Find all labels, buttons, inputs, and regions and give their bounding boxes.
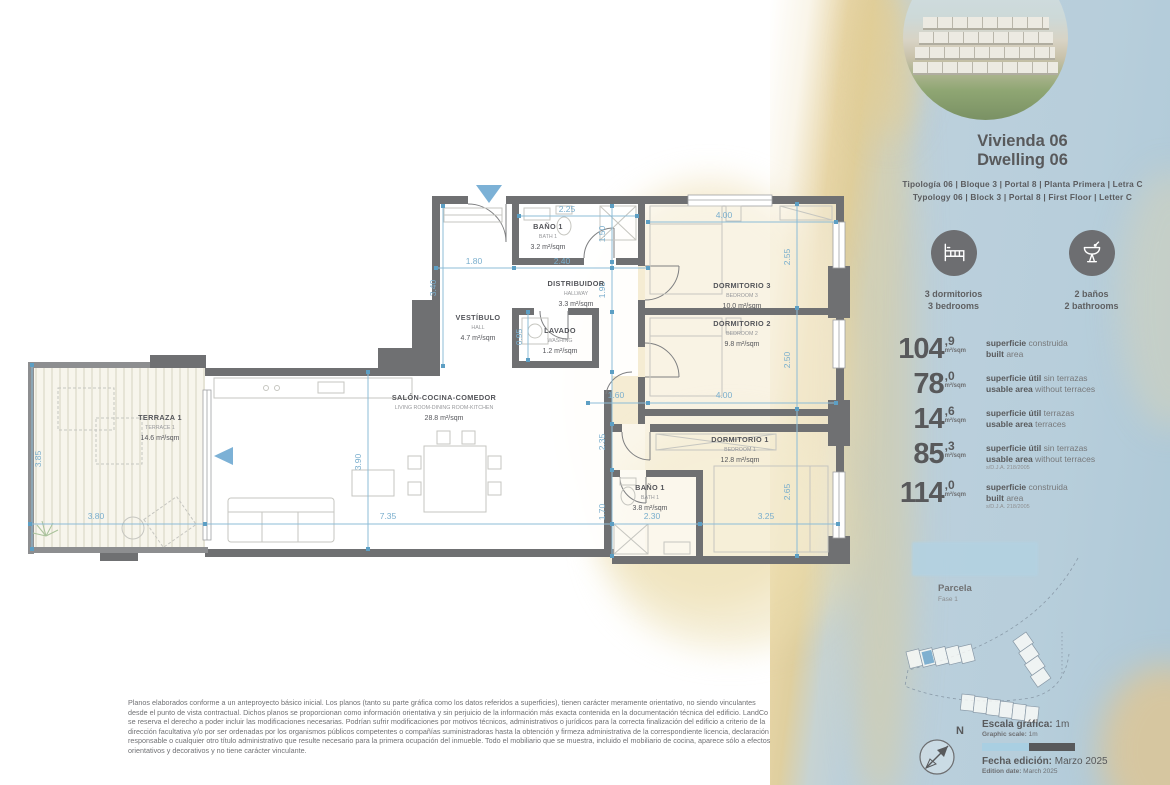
dim-label: 2.25 — [559, 204, 576, 214]
room-label: 3.3 m²/sqm — [558, 301, 593, 308]
entry-arrow-icon — [476, 185, 502, 203]
stat-decimal: ,6 — [945, 406, 955, 417]
dim-label: 3.90 — [353, 453, 363, 470]
stat-note: s/D.J.A. 218/2005 — [986, 504, 1068, 510]
stat-row: 114 ,0 m²/sqm superficie construida buil… — [880, 480, 1168, 510]
room-label: VESTÍBULO — [456, 313, 501, 322]
feature-icons: 3 dormitorios 3 bedrooms 2 baños 2 bathr… — [880, 230, 1165, 312]
room-label: SALÓN-COCINA-COMEDOR — [392, 393, 497, 402]
feature-bathrooms: 2 baños 2 bathrooms — [1042, 230, 1142, 312]
room-label: BEDROOM 1 — [724, 447, 756, 453]
dim-label: 1.60 — [608, 390, 625, 400]
compass-north-icon: N — [920, 725, 964, 774]
stat-decimal: ,3 — [945, 441, 955, 452]
stat-decimal: ,9 — [945, 336, 955, 347]
room-label: TERRACE 1 — [145, 425, 175, 431]
stat-value: 78 — [913, 371, 943, 397]
room-label: BAÑO 1 — [635, 483, 665, 492]
dim-label: 2.65 — [782, 483, 792, 500]
room-label: 12.8 m²/sqm — [721, 457, 760, 464]
title-en: Dwelling 06 — [880, 151, 1165, 170]
title-es: Vivienda 06 — [880, 132, 1165, 151]
bathrooms-label-es: 2 baños — [1064, 288, 1118, 300]
stat-value: 85 — [913, 441, 943, 467]
dim-label: 3.25 — [758, 511, 775, 521]
room-label: DORMITORIO 1 — [711, 435, 769, 444]
scale-and-date: Escala gráfica: 1m Graphic scale: 1m Fec… — [982, 719, 1108, 776]
room-label: TERRAZA 1 — [138, 413, 182, 422]
room-label: LIVING ROOM-DINING ROOM-KITCHEN — [395, 405, 494, 411]
room-label: 28.8 m²/sqm — [425, 415, 464, 422]
dim-label: 4.00 — [716, 210, 733, 220]
room-label: 10.0 m²/sqm — [723, 303, 762, 310]
bathrooms-label-en: 2 bathrooms — [1064, 300, 1118, 312]
room-label: WASHING — [547, 338, 572, 344]
room-label: HALLWAY — [564, 291, 589, 297]
stat-decimal: ,0 — [945, 371, 955, 382]
bedrooms-label-en: 3 bedrooms — [925, 300, 983, 312]
room-label: BEDROOM 3 — [726, 293, 758, 299]
room-label: HALL — [471, 325, 484, 331]
dim-label: 1.80 — [466, 256, 483, 266]
bed-icon — [931, 230, 977, 276]
dim-label: 3.80 — [88, 511, 105, 521]
room-label: 4.7 m²/sqm — [460, 335, 495, 342]
dim-label: 4.00 — [716, 390, 733, 400]
stat-decimal: ,0 — [945, 480, 955, 491]
parcel-phase: Fase 1 — [938, 594, 972, 605]
scale-label-es: Escala gráfica: — [982, 719, 1053, 730]
parcel-label: Parcela Fase 1 — [938, 583, 972, 605]
stat-row: 14 ,6 m²/sqm superficie útil terrazas us… — [880, 406, 1168, 432]
room-label: BAÑO 1 — [533, 222, 563, 231]
graphic-scale-bar — [982, 743, 1108, 751]
room-label: BATH 1 — [641, 495, 659, 501]
dim-label: 1.70 — [597, 503, 607, 520]
north-label: N — [956, 725, 964, 737]
stat-unit: m²/sqm — [945, 383, 966, 389]
parcel-title: Parcela — [938, 583, 972, 594]
stat-value: 14 — [913, 406, 943, 432]
room-label: LAVADO — [544, 326, 576, 335]
typology-en: Typology 06 | Block 3 | Portal 8 | First… — [855, 191, 1170, 204]
room-label: BATH 1 — [539, 234, 557, 240]
parcel-map — [905, 558, 1078, 723]
stat-unit: m²/sqm — [945, 453, 966, 459]
scale-label-en: Graphic scale: — [982, 731, 1027, 738]
dim-label: 2.55 — [782, 248, 792, 265]
dim-label: 7.35 — [380, 511, 397, 521]
dim-label: 3.85 — [33, 450, 43, 467]
dim-label: 1.50 — [597, 225, 607, 242]
stat-row: 85 ,3 m²/sqm superficie útil sin terraza… — [880, 441, 1168, 471]
date-label-en: Edition date: — [982, 768, 1021, 775]
area-statistics: 104 ,9 m²/sqm superficie construida buil… — [880, 336, 1168, 519]
room-label: 14.6 m²/sqm — [141, 435, 180, 442]
dim-label: 2.40 — [554, 256, 571, 266]
legal-disclaimer: Planos elaborados conforme a un anteproy… — [128, 698, 776, 756]
washbasin-icon — [1069, 230, 1115, 276]
stat-row: 104 ,9 m²/sqm superficie construida buil… — [880, 336, 1168, 362]
room-label: BEDROOM 2 — [726, 331, 758, 337]
typology-lines: Tipología 06 | Bloque 3 | Portal 8 | Pla… — [855, 178, 1170, 204]
room-label: DISTRIBUIDOR — [548, 279, 605, 288]
room-label: 1.2 m²/sqm — [542, 348, 577, 355]
stat-note: s/D.J.A. 218/2005 — [986, 465, 1095, 471]
dim-label: 2.30 — [644, 511, 661, 521]
room-label: DORMITORIO 3 — [713, 281, 771, 290]
dim-label: 2.50 — [782, 351, 792, 368]
stat-row: 78 ,0 m²/sqm superficie útil sin terraza… — [880, 371, 1168, 397]
room-label: 9.8 m²/sqm — [724, 341, 759, 348]
dim-label: 0.95 — [514, 328, 524, 345]
stat-unit: m²/sqm — [945, 348, 966, 354]
stat-unit: m²/sqm — [945, 418, 966, 424]
stat-unit: m²/sqm — [945, 492, 966, 498]
room-label: 3.8 m²/sqm — [632, 505, 667, 512]
room-label: DORMITORIO 2 — [713, 319, 771, 328]
stat-value: 104 — [898, 336, 943, 362]
typology-es: Tipología 06 | Bloque 3 | Portal 8 | Pla… — [855, 178, 1170, 191]
room-label: 3.2 m²/sqm — [530, 244, 565, 251]
page-title: Vivienda 06 Dwelling 06 — [880, 132, 1165, 170]
dim-label: 3.40 — [428, 279, 438, 296]
feature-bedrooms: 3 dormitorios 3 bedrooms — [904, 230, 1004, 312]
stat-value: 114 — [900, 480, 944, 506]
floorplan-brochure-page: 1.80 2.40 2.25 4.00 1.60 4.00 3.80 7.35 … — [0, 0, 1170, 785]
dim-label: 2.35 — [597, 433, 607, 450]
date-label-es: Fecha edición: — [982, 756, 1052, 767]
bedrooms-label-es: 3 dormitorios — [925, 288, 983, 300]
